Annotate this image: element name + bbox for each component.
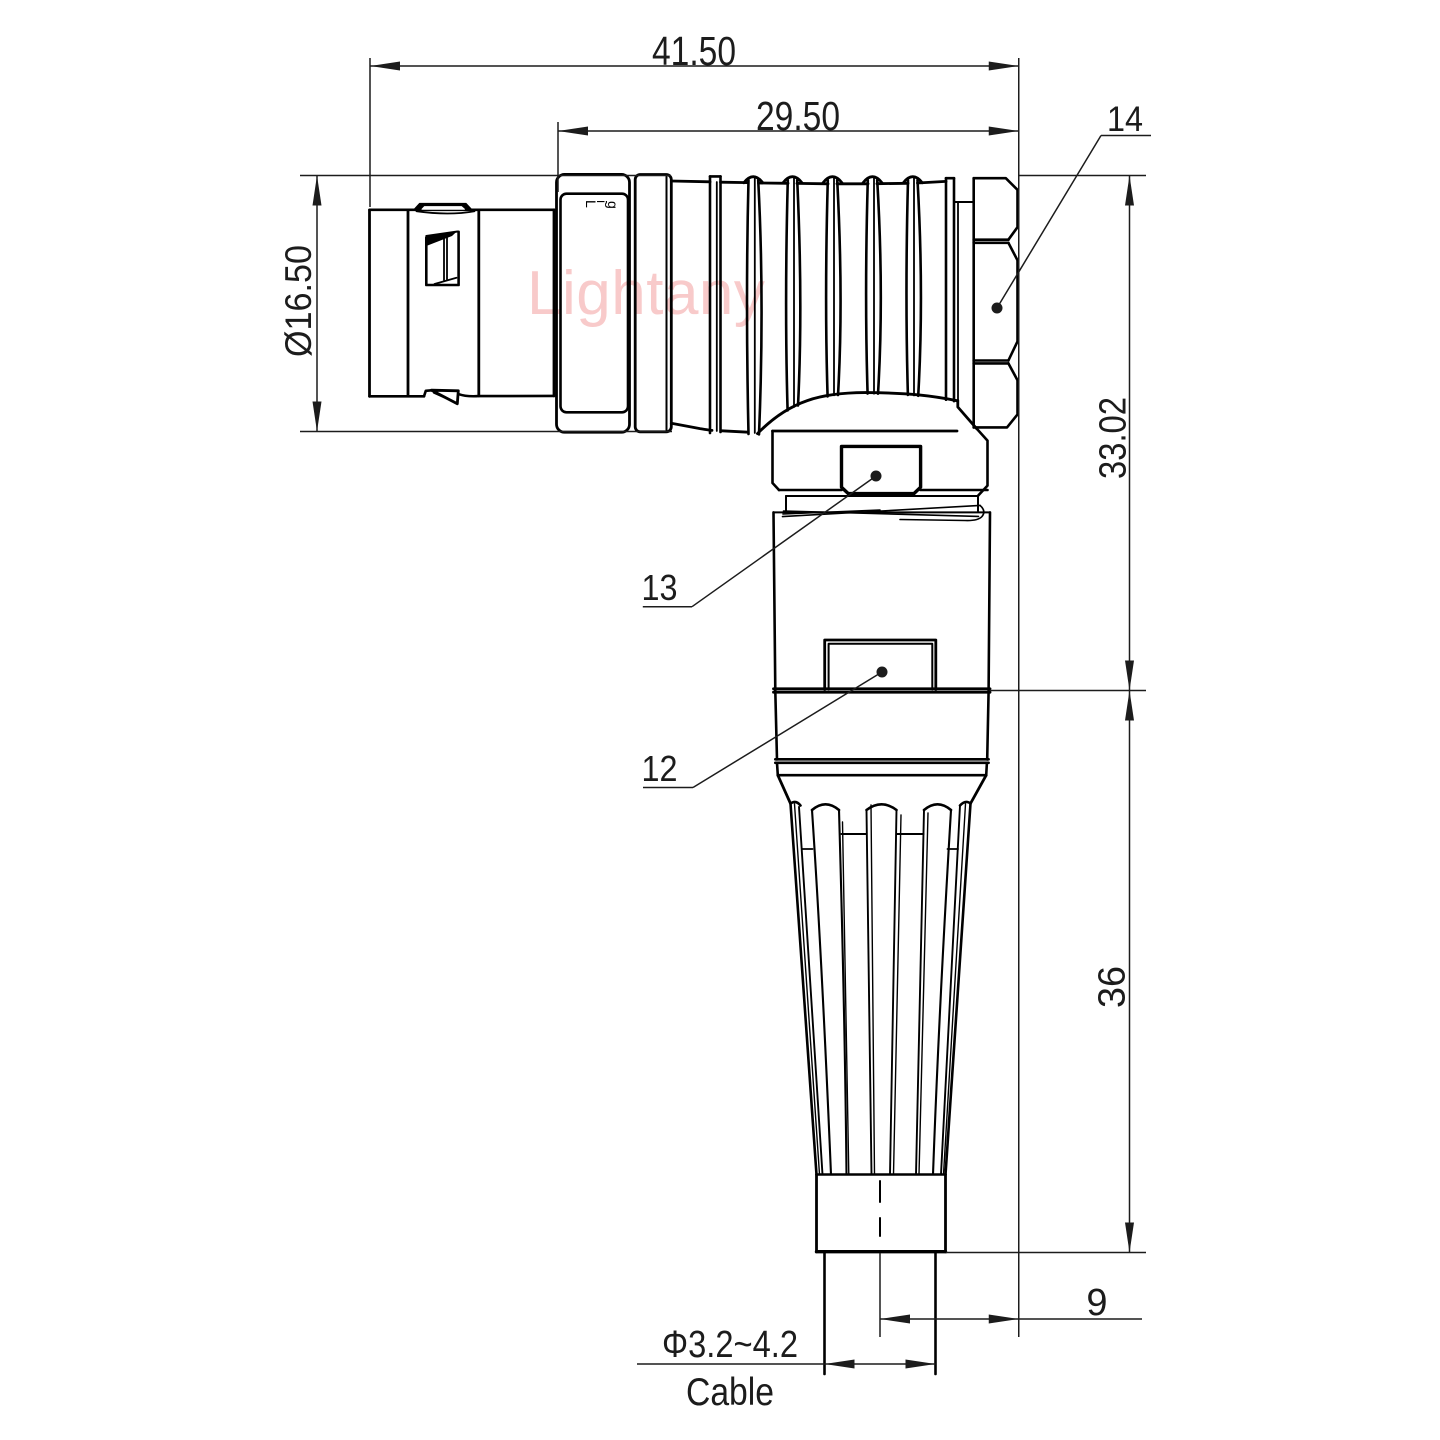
svg-text:g: g bbox=[605, 201, 621, 209]
svg-text:9: 9 bbox=[1086, 1282, 1107, 1324]
svg-text:Ø16.50: Ø16.50 bbox=[278, 245, 319, 357]
svg-text:29.50: 29.50 bbox=[756, 93, 840, 139]
svg-text:13: 13 bbox=[642, 567, 678, 608]
svg-text:41.50: 41.50 bbox=[652, 28, 736, 74]
svg-text:33.02: 33.02 bbox=[1093, 397, 1135, 479]
svg-text:12: 12 bbox=[642, 748, 678, 789]
svg-text:Lightany: Lightany bbox=[527, 259, 765, 328]
svg-text:14: 14 bbox=[1107, 100, 1143, 139]
svg-text:Cable: Cable bbox=[686, 1371, 774, 1414]
svg-text:Φ3.2~4.2: Φ3.2~4.2 bbox=[662, 1324, 798, 1366]
svg-text:36: 36 bbox=[1092, 966, 1134, 1008]
